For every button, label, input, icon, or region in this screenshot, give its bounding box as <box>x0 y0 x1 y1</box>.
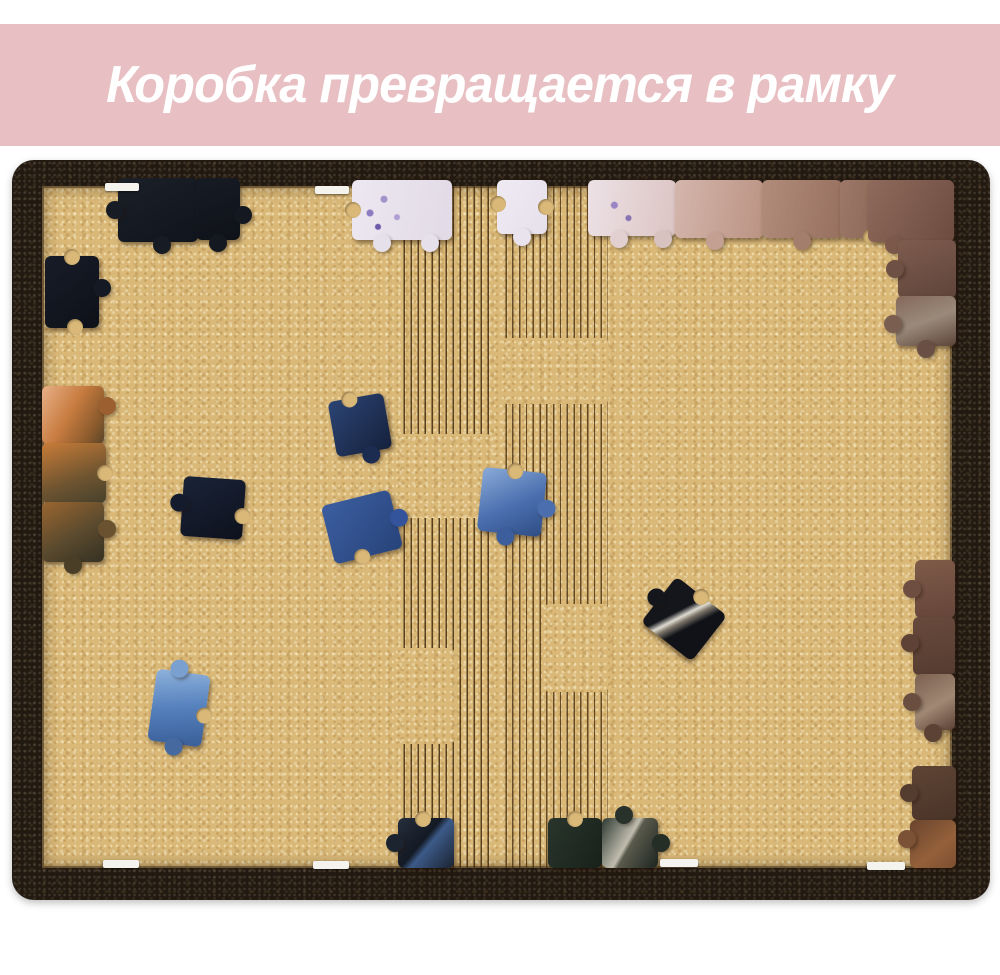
puzzle-piece <box>896 296 956 346</box>
puzzle-knob <box>421 234 439 252</box>
puzzle-knob <box>106 201 124 219</box>
puzzle-knob <box>98 520 116 538</box>
frame-lock-tab <box>867 862 905 870</box>
puzzle-piece <box>180 476 246 540</box>
frame-lock-tab <box>315 186 349 194</box>
puzzle-piece <box>912 766 956 820</box>
puzzle-knob <box>706 232 724 250</box>
puzzle-knob <box>610 230 628 248</box>
banner-text: Коробка превращается в рамку <box>107 55 894 115</box>
puzzle-knob <box>64 556 82 574</box>
puzzle-piece <box>675 180 763 238</box>
puzzle-knob <box>793 232 811 250</box>
puzzle-piece <box>477 467 547 537</box>
puzzle-knob <box>900 784 918 802</box>
puzzle-knob <box>97 465 113 481</box>
puzzle-piece <box>352 180 452 240</box>
puzzle-piece <box>42 386 104 444</box>
puzzle-knob <box>903 693 921 711</box>
puzzle-knob <box>513 228 531 246</box>
puzzle-knob <box>153 236 171 254</box>
puzzle-knob <box>67 319 83 335</box>
puzzle-knob <box>170 493 189 512</box>
puzzle-piece <box>910 820 956 868</box>
board-patch <box>542 604 610 692</box>
puzzle-knob <box>386 834 404 852</box>
puzzle-knob <box>567 811 583 827</box>
puzzle-piece <box>328 393 393 458</box>
puzzle-knob <box>903 580 921 598</box>
puzzle-knob <box>415 811 431 827</box>
title-banner: Коробка превращается в рамку <box>0 24 1000 146</box>
frame-lock-tab <box>105 183 139 191</box>
puzzle-knob <box>924 724 942 742</box>
frame-lock-tab <box>103 860 139 868</box>
puzzle-piece <box>497 180 547 234</box>
puzzle-frame <box>12 160 990 900</box>
puzzle-knob <box>884 315 902 333</box>
puzzle-piece <box>602 818 658 868</box>
puzzle-piece <box>588 180 676 236</box>
puzzle-knob <box>345 202 361 218</box>
puzzle-knob <box>209 234 227 252</box>
puzzle-knob <box>64 249 80 265</box>
puzzle-knob <box>886 260 904 278</box>
board-patch <box>394 648 456 744</box>
puzzle-piece <box>42 502 104 562</box>
puzzle-piece <box>42 443 106 503</box>
puzzle-piece <box>762 180 842 238</box>
puzzle-piece <box>898 240 956 298</box>
board-patch <box>500 338 610 404</box>
puzzle-piece <box>45 256 99 328</box>
puzzle-knob <box>652 834 670 852</box>
puzzle-knob <box>490 196 506 212</box>
puzzle-piece <box>196 178 240 240</box>
puzzle-knob <box>917 340 935 358</box>
puzzle-knob <box>654 230 672 248</box>
puzzle-knob <box>538 199 554 215</box>
puzzle-piece <box>147 669 210 748</box>
puzzle-piece <box>913 617 955 675</box>
puzzle-piece <box>548 818 602 868</box>
puzzle-knob <box>901 634 919 652</box>
puzzle-piece <box>868 180 954 242</box>
frame-lock-tab <box>313 861 349 869</box>
puzzle-piece <box>915 560 955 618</box>
puzzle-piece <box>915 674 955 730</box>
puzzle-knob <box>898 830 916 848</box>
puzzle-knob <box>373 234 391 252</box>
puzzle-knob <box>615 806 633 824</box>
frame-lock-tab <box>660 859 698 867</box>
puzzle-piece <box>398 818 454 868</box>
puzzle-knob <box>506 462 524 480</box>
